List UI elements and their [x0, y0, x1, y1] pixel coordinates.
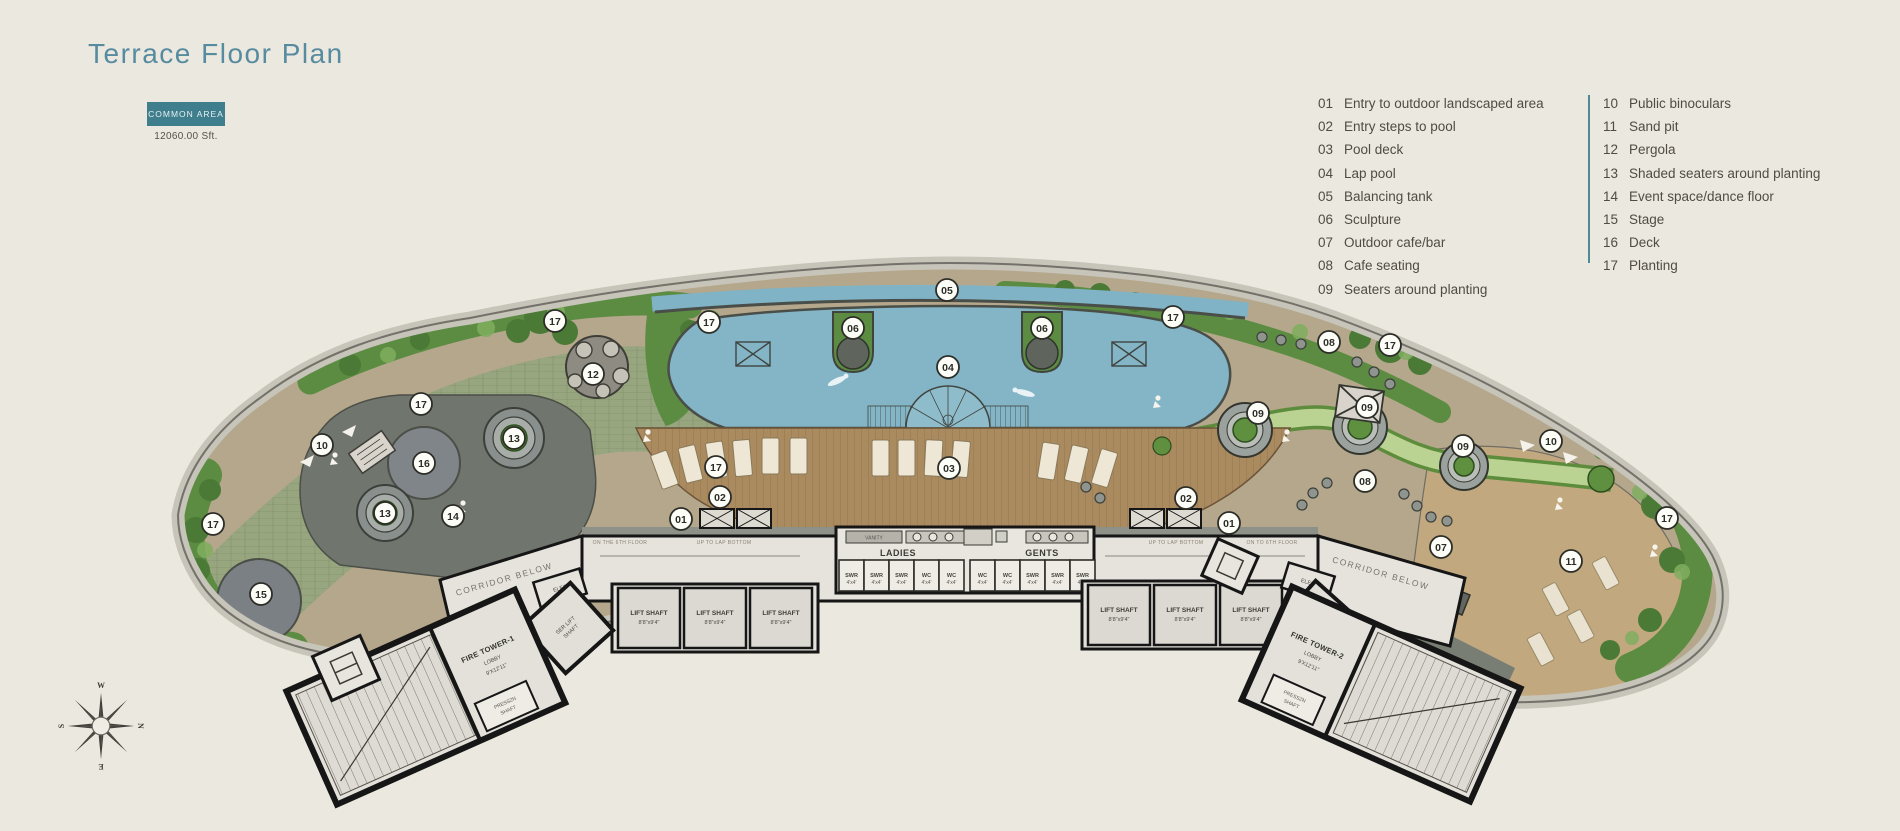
- toilet-stall: SWR4'x4': [839, 560, 864, 591]
- plan-marker-17: 17: [1379, 334, 1401, 356]
- svg-text:4'x4': 4'x4': [922, 580, 932, 586]
- plan-marker-17: 17: [202, 513, 224, 535]
- svg-text:4'x4': 4'x4': [847, 580, 857, 586]
- svg-text:08: 08: [1323, 337, 1335, 349]
- svg-text:4'x4': 4'x4': [1053, 580, 1063, 586]
- svg-text:06: 06: [847, 323, 859, 335]
- svg-text:SWR: SWR: [895, 573, 908, 579]
- svg-text:03: 03: [943, 463, 955, 475]
- svg-text:8'8"x9'4": 8'8"x9'4": [1109, 617, 1130, 623]
- plan-marker-08: 08: [1354, 470, 1376, 492]
- toilet-stall: WC4'x4': [914, 560, 939, 591]
- toilet-stall: WC4'x4': [995, 560, 1020, 591]
- label-ladies: LADIES: [880, 548, 916, 558]
- lift-shaft: LIFT SHAFT8'8"x9'4": [618, 588, 680, 648]
- plan-marker-02: 02: [1175, 487, 1197, 509]
- plan-marker-09: 09: [1452, 435, 1474, 457]
- toilet-stall: SWR4'x4': [1045, 560, 1070, 591]
- svg-text:09: 09: [1457, 441, 1469, 453]
- planter: [1588, 466, 1614, 492]
- svg-text:WC: WC: [947, 573, 956, 579]
- label-up-to-lap-bottom: UP TO LAP BOTTOM: [697, 540, 752, 546]
- label-on-to-6th-floor: ON TO 6TH FLOOR: [1246, 540, 1297, 546]
- plan-marker-02: 02: [709, 486, 731, 508]
- plan-marker-17: 17: [1162, 306, 1184, 328]
- plan-marker-08: 08: [1318, 331, 1340, 353]
- label-gents: GENTS: [1025, 548, 1059, 558]
- svg-text:17: 17: [1167, 312, 1179, 324]
- svg-text:SWR: SWR: [1026, 573, 1039, 579]
- svg-text:11: 11: [1565, 556, 1576, 568]
- svg-text:LIFT SHAFT: LIFT SHAFT: [1232, 607, 1269, 614]
- svg-text:13: 13: [508, 433, 520, 445]
- plan-marker-17: 17: [705, 456, 727, 478]
- plan-marker-04: 04: [937, 356, 959, 378]
- svg-text:SWR: SWR: [845, 573, 858, 579]
- svg-text:8'8"x9'4": 8'8"x9'4": [771, 620, 792, 626]
- svg-text:09: 09: [1361, 402, 1373, 414]
- plan-marker-13: 13: [503, 427, 525, 449]
- svg-text:17: 17: [703, 317, 715, 329]
- compass-e: E: [98, 762, 103, 771]
- compass-rose: W N E S: [52, 677, 150, 775]
- svg-text:06: 06: [1036, 323, 1048, 335]
- svg-text:WC: WC: [922, 573, 931, 579]
- svg-text:17: 17: [415, 399, 427, 411]
- plan-marker-17: 17: [1656, 507, 1678, 529]
- label-vanity: VANITY: [865, 536, 883, 542]
- svg-text:8'8"x9'4": 8'8"x9'4": [705, 620, 726, 626]
- plan-marker-17: 17: [410, 393, 432, 415]
- svg-text:8'8"x9'4": 8'8"x9'4": [639, 620, 660, 626]
- toilet-stall: WC4'x4': [939, 560, 964, 591]
- svg-text:17: 17: [207, 519, 219, 531]
- svg-text:13: 13: [379, 508, 391, 520]
- svg-text:LIFT SHAFT: LIFT SHAFT: [1166, 607, 1203, 614]
- plan-marker-06: 06: [1031, 317, 1053, 339]
- plan-marker-10: 10: [311, 434, 333, 456]
- svg-text:09: 09: [1252, 408, 1264, 420]
- svg-text:02: 02: [714, 492, 726, 504]
- plan-marker-13: 13: [374, 502, 396, 524]
- compass-s: S: [57, 723, 66, 728]
- svg-text:4'x4': 4'x4': [1028, 580, 1038, 586]
- compass-n: N: [136, 723, 145, 729]
- svg-text:LIFT SHAFT: LIFT SHAFT: [1100, 607, 1137, 614]
- svg-text:01: 01: [1223, 518, 1235, 530]
- svg-text:8'8"x9'4": 8'8"x9'4": [1175, 617, 1196, 623]
- plan-marker-16: 16: [413, 452, 435, 474]
- svg-text:07: 07: [1435, 542, 1447, 554]
- lift-shaft: LIFT SHAFT8'8"x9'4": [684, 588, 746, 648]
- svg-text:17: 17: [549, 316, 561, 328]
- svg-text:4'x4': 4'x4': [897, 580, 907, 586]
- svg-text:16: 16: [418, 458, 430, 470]
- label-on-the-6th-floor: ON THE 6TH FLOOR: [593, 540, 648, 546]
- svg-text:17: 17: [1384, 340, 1396, 352]
- terrace-floor-plan: ON THE 6TH FLOOR UP TO LAP BOTTOM UP TO …: [0, 0, 1900, 831]
- planter: [1153, 437, 1171, 455]
- svg-text:WC: WC: [1003, 573, 1012, 579]
- compass-star: [68, 693, 135, 760]
- svg-text:08: 08: [1359, 476, 1371, 488]
- toilet-stall: SWR4'x4': [864, 560, 889, 591]
- svg-text:4'x4': 4'x4': [1003, 580, 1013, 586]
- lift-shaft: LIFT SHAFT8'8"x9'4": [1154, 585, 1216, 645]
- svg-text:4'x4': 4'x4': [947, 580, 957, 586]
- svg-text:SWR: SWR: [1051, 573, 1064, 579]
- svg-text:LIFT SHAFT: LIFT SHAFT: [696, 610, 733, 617]
- compass-w: W: [97, 681, 105, 690]
- svg-text:15: 15: [255, 589, 267, 601]
- svg-text:12: 12: [587, 369, 599, 381]
- plan-marker-17: 17: [544, 310, 566, 332]
- plan-marker-11: 11: [1560, 550, 1582, 572]
- plan-marker-12: 12: [582, 363, 604, 385]
- plan-marker-05: 05: [936, 279, 958, 301]
- svg-text:02: 02: [1180, 493, 1192, 505]
- plan-marker-15: 15: [250, 583, 272, 605]
- plan-marker-17: 17: [698, 311, 720, 333]
- svg-text:14: 14: [447, 511, 459, 523]
- label-up-to-lap-bottom: UP TO LAP BOTTOM: [1149, 540, 1204, 546]
- plan-marker-01: 01: [1218, 512, 1240, 534]
- svg-text:05: 05: [941, 285, 953, 297]
- svg-text:17: 17: [1661, 513, 1673, 525]
- svg-text:SWR: SWR: [1076, 573, 1089, 579]
- svg-text:17: 17: [710, 462, 722, 474]
- plan-marker-06: 06: [842, 317, 864, 339]
- svg-text:01: 01: [675, 514, 687, 526]
- toilet-stall: WC4'x4': [970, 560, 995, 591]
- svg-text:LIFT SHAFT: LIFT SHAFT: [630, 610, 667, 617]
- plan-marker-03: 03: [938, 457, 960, 479]
- svg-text:8'8"x9'4": 8'8"x9'4": [1241, 617, 1262, 623]
- plan-marker-14: 14: [442, 505, 464, 527]
- plan-marker-09: 09: [1356, 396, 1378, 418]
- plan-marker-09: 09: [1247, 402, 1269, 424]
- svg-text:4'x4': 4'x4': [978, 580, 988, 586]
- svg-text:10: 10: [1545, 436, 1557, 448]
- plan-marker-07: 07: [1430, 536, 1452, 558]
- svg-text:WC: WC: [978, 573, 987, 579]
- svg-text:4'x4': 4'x4': [872, 580, 882, 586]
- toilet-stall: SWR4'x4': [889, 560, 914, 591]
- toilet-stall: SWR4'x4': [1020, 560, 1045, 591]
- cabana: [1438, 322, 1479, 354]
- svg-text:04: 04: [942, 362, 954, 374]
- svg-text:SWR: SWR: [870, 573, 883, 579]
- plan-marker-10: 10: [1540, 430, 1562, 452]
- plan-marker-01: 01: [670, 508, 692, 530]
- svg-text:10: 10: [316, 440, 328, 452]
- lift-shaft: LIFT SHAFT8'8"x9'4": [1088, 585, 1150, 645]
- svg-text:LIFT SHAFT: LIFT SHAFT: [762, 610, 799, 617]
- lift-shaft: LIFT SHAFT8'8"x9'4": [750, 588, 812, 648]
- toilet-block: VANITY LADIES GENTS SWR4'x4'SWR4'x4'SWR4…: [836, 527, 1095, 593]
